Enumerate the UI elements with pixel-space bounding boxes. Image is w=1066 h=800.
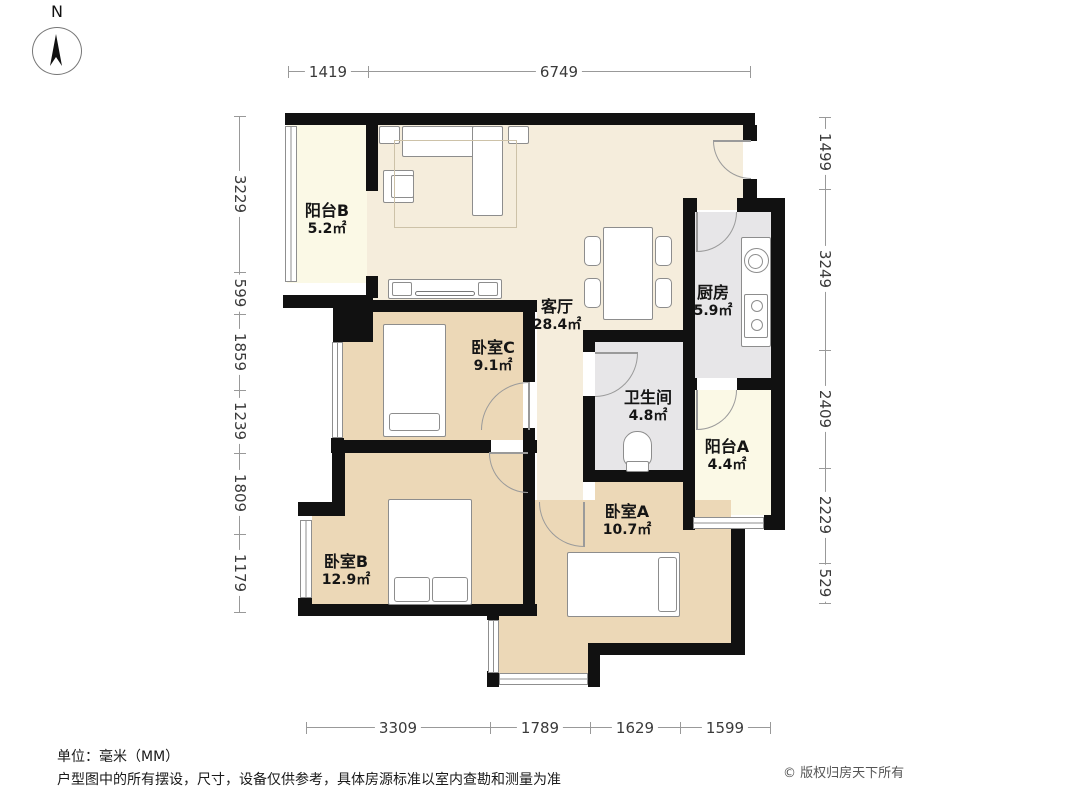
dim-bottom-1: 1789: [517, 719, 563, 737]
dimension-tick: [819, 117, 831, 118]
room-area: 4.8㎡: [624, 407, 672, 426]
room-label-living: 客厅 28.4㎡: [533, 297, 582, 335]
pillow: [389, 413, 440, 431]
wall: [743, 125, 757, 141]
dining-chair: [655, 278, 672, 308]
dim-left-4: 1809: [231, 470, 249, 516]
room-label-bedroom-a: 卧室A 10.7㎡: [603, 502, 652, 540]
door-entry-leaf: [713, 140, 751, 142]
room-label-kitchen: 厨房 5.9㎡: [694, 283, 733, 321]
dining-chair: [584, 278, 601, 308]
wall: [683, 515, 693, 530]
wall: [331, 440, 491, 453]
dim-right-4: 529: [816, 565, 834, 602]
dining-chair: [655, 236, 672, 266]
toilet-tank: [626, 461, 649, 472]
dimension-tick: [590, 722, 591, 734]
dim-left-1: 599: [231, 275, 249, 312]
tv: [415, 291, 475, 296]
rug: [394, 140, 517, 228]
room-label-bedroom-c: 卧室C 9.1㎡: [471, 338, 515, 376]
dimension-tick: [234, 314, 246, 315]
room-name: 卧室B: [322, 552, 371, 571]
room-name: 客厅: [533, 297, 582, 316]
disclaimer-text: 户型图中的所有摆设，尺寸，设备仅供参考，具体房源标准以室内查勘和测量为准: [57, 769, 561, 789]
room-area: 5.9㎡: [694, 302, 733, 321]
door-balcony-a-leaf: [696, 390, 698, 430]
burner: [751, 300, 763, 312]
wall: [583, 330, 683, 342]
dim-right-0: 1499: [816, 129, 834, 175]
room-label-bedroom-b: 卧室B 12.9㎡: [322, 552, 371, 590]
floor-hallway: [537, 312, 583, 502]
wall: [285, 113, 755, 125]
floor-plan-canvas: N 阳台B 5.2㎡ 客厅 28.4㎡ 厨房 5.9㎡ 卫生间 4.8㎡ 阳台A…: [0, 0, 1066, 800]
dimension-tick: [234, 390, 246, 391]
room-area: 12.9㎡: [322, 571, 371, 590]
door-bedroom-a-leaf: [583, 502, 585, 547]
dimension-tick: [819, 350, 831, 351]
wall: [366, 125, 378, 191]
pillow: [394, 577, 430, 602]
dim-right-2: 2409: [816, 386, 834, 432]
wall: [298, 604, 537, 616]
room-name: 卧室C: [471, 338, 515, 357]
door-kitchen-leaf: [696, 212, 698, 252]
floor-bedroom-a: [595, 482, 683, 500]
wall: [737, 378, 785, 390]
tv-stand-box: [392, 282, 412, 296]
window: [693, 517, 764, 529]
room-name: 阳台B: [305, 201, 349, 220]
dimension-tick: [770, 722, 771, 734]
room-area: 10.7㎡: [603, 521, 652, 540]
room-area: 28.4㎡: [533, 316, 582, 335]
dimension-tick: [288, 66, 289, 78]
wall: [731, 528, 745, 655]
room-label-bathroom: 卫生间 4.8㎡: [624, 388, 672, 426]
room-area: 5.2㎡: [305, 220, 349, 239]
door-bathroom-leaf: [595, 352, 638, 354]
dimension-tick: [750, 66, 751, 78]
wall: [588, 643, 745, 655]
dimension-tick: [306, 722, 307, 734]
dim-left-3: 1239: [231, 398, 249, 444]
burner: [751, 319, 763, 331]
wall: [683, 210, 695, 530]
dimension-tick: [490, 722, 491, 734]
dim-left-2: 1859: [231, 329, 249, 375]
wall: [487, 606, 499, 620]
room-name: 卫生间: [624, 388, 672, 407]
room-area: 4.4㎡: [705, 456, 749, 475]
window: [285, 126, 297, 282]
wall: [333, 300, 537, 312]
wall: [771, 198, 785, 530]
dimension-tick: [234, 612, 246, 613]
dimension-tick: [680, 722, 681, 734]
pillow: [658, 557, 677, 612]
dimension-tick: [819, 603, 831, 604]
dim-bottom-3: 1599: [702, 719, 748, 737]
door-bedroom-c-leaf: [528, 382, 530, 430]
dimension-tick: [234, 453, 246, 454]
window: [300, 520, 312, 598]
sink-basin: [748, 254, 763, 269]
wall: [583, 396, 595, 470]
floor-bedroom-a: [683, 530, 731, 643]
room-area: 9.1㎡: [471, 357, 515, 376]
dimension-tick: [234, 534, 246, 535]
room-name: 卧室A: [603, 502, 652, 521]
plan-area: [0, 0, 1066, 800]
wall: [487, 671, 499, 687]
floor-bedroom-a: [499, 616, 588, 673]
dimension-tick: [234, 272, 246, 273]
dimension-tick: [819, 189, 831, 190]
wall: [588, 643, 600, 687]
wall: [764, 515, 785, 530]
dining-table: [603, 227, 653, 320]
window: [332, 342, 343, 438]
dining-chair: [584, 236, 601, 266]
copyright-text: © 版权归房天下所有: [783, 762, 904, 781]
room-label-balcony-b: 阳台B 5.2㎡: [305, 201, 349, 239]
dim-bottom-2: 1629: [612, 719, 658, 737]
dim-bottom-0: 3309: [375, 719, 421, 737]
dimension-tick: [819, 468, 831, 469]
dimension-line: [288, 71, 750, 72]
window: [499, 673, 588, 685]
dim-left-5: 1179: [231, 550, 249, 596]
wall: [583, 342, 595, 352]
dim-top-1: 6749: [536, 63, 582, 81]
pillow: [432, 577, 468, 602]
dim-right-1: 3249: [816, 246, 834, 292]
room-name: 厨房: [694, 283, 733, 302]
dim-top-0: 1419: [305, 63, 351, 81]
dimension-tick: [368, 66, 369, 78]
unit-note: 单位：毫米（MM）: [57, 746, 179, 766]
dim-left-0: 3229: [231, 171, 249, 217]
dimension-tick: [234, 116, 246, 117]
wall: [332, 453, 345, 503]
door-bedroom-b-leaf: [489, 452, 528, 454]
tv-stand-box: [478, 282, 498, 296]
dim-right-3: 2229: [816, 492, 834, 538]
room-label-balcony-a: 阳台A 4.4㎡: [705, 437, 749, 475]
room-name: 阳台A: [705, 437, 749, 456]
wall: [298, 502, 345, 516]
wall: [683, 378, 697, 390]
window: [488, 620, 499, 673]
